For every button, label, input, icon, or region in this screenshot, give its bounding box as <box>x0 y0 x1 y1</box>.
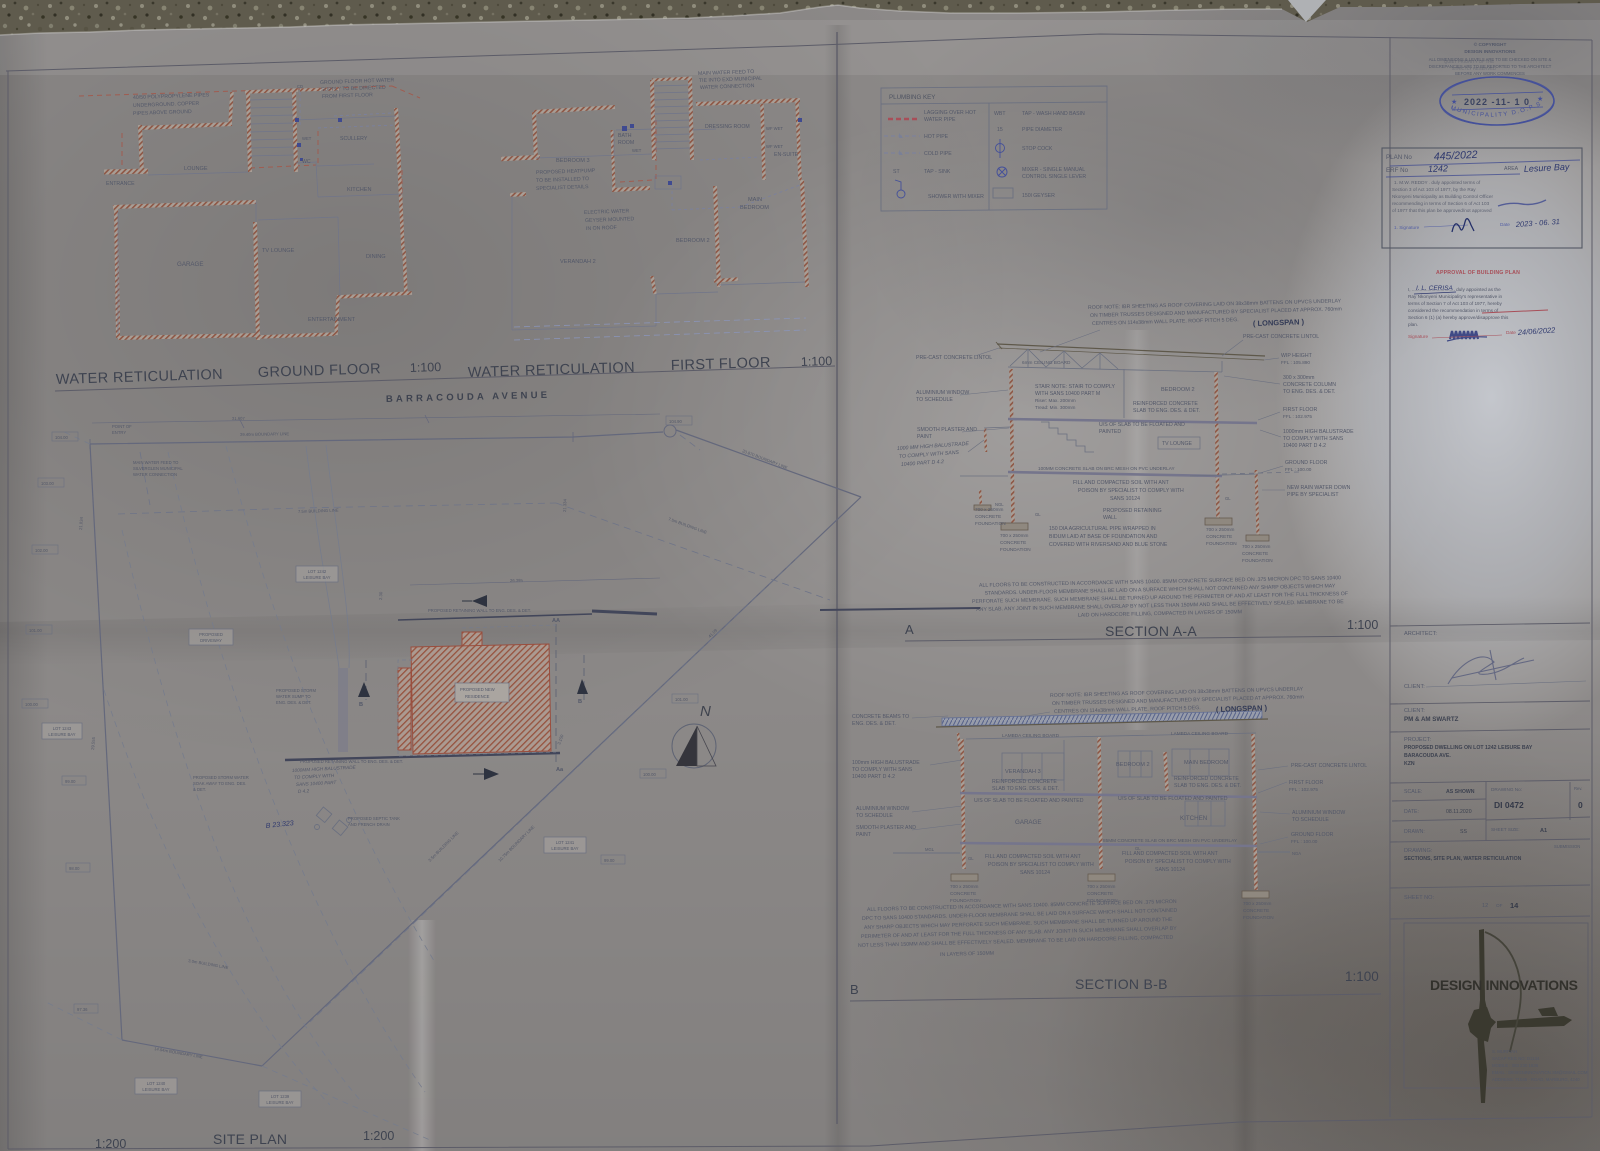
svg-text:FFL : 102.975: FFL : 102.975 <box>1283 414 1312 419</box>
svg-text:Ray Nkonyeni Municipality's re: Ray Nkonyeni Municipality's representati… <box>1408 294 1503 299</box>
svg-text:CLIENT:: CLIENT: <box>1404 708 1425 714</box>
svg-text:Nkonyeni Municipality as Build: Nkonyeni Municipality as Building Contro… <box>1392 194 1493 199</box>
svg-text:ARCHITECT:: ARCHITECT: <box>1404 631 1437 637</box>
svg-text:PIPE BY SPECIALIST: PIPE BY SPECIALIST <box>1287 492 1339 498</box>
svg-text:AND FRENCH DRAIN: AND FRENCH DRAIN <box>348 822 390 827</box>
svg-text:1:100: 1:100 <box>1345 969 1379 984</box>
svg-text:PM & AM SWARTZ: PM & AM SWARTZ <box>1404 716 1459 723</box>
svg-text:TO SCHEDULE: TO SCHEDULE <box>1292 817 1329 823</box>
svg-text:Aa: Aa <box>556 767 564 773</box>
svg-text:PRE-CAST CONCRETE LINTOL: PRE-CAST CONCRETE LINTOL <box>916 355 992 361</box>
svg-text:99.00: 99.00 <box>604 858 615 863</box>
svg-text:ADDRESS: 71045 - ROAD, MARBURG: ADDRESS: 71045 - ROAD, MARBURG, 4240 <box>1492 1077 1580 1082</box>
svg-text:LOT 1240: LOT 1240 <box>147 1081 166 1086</box>
svg-text:POISON BY SPECIALIST TO COMPLY: POISON BY SPECIALIST TO COMPLY WITH <box>1078 488 1184 494</box>
svg-text:PROPOSED RETAINING WALL TO ENG: PROPOSED RETAINING WALL TO ENG. DES. & D… <box>428 608 531 613</box>
svg-text:TO SCHEDULE: TO SCHEDULE <box>916 397 953 403</box>
svg-text:SLAB TO ENG. DES. & DET.: SLAB TO ENG. DES. & DET. <box>1133 408 1200 414</box>
svg-text:STOP COCK: STOP COCK <box>1022 146 1053 152</box>
svg-text:PLAN No: PLAN No <box>1386 154 1412 161</box>
svg-text:& DET.: & DET. <box>193 787 206 792</box>
svg-text:101.00: 101.00 <box>675 697 688 702</box>
svg-text:6mm CEILING BOARD: 6mm CEILING BOARD <box>1022 360 1071 365</box>
svg-text:CONCRETE BEAMS TO: CONCRETE BEAMS TO <box>852 714 909 720</box>
svg-text:ENTRANCE: ENTRANCE <box>106 181 135 187</box>
svg-text:QUIET PRIORITY OF THE: QUIET PRIORITY OF THE <box>1444 59 1494 64</box>
svg-text:STRICTLY RESERVED: STRICTLY RESERVED <box>1452 66 1496 71</box>
svg-text:15: 15 <box>997 127 1003 133</box>
svg-text:08.11.2020: 08.11.2020 <box>1446 809 1472 815</box>
svg-text:CLIENT:: CLIENT: <box>1404 684 1425 690</box>
svg-text:GL: GL <box>1135 846 1141 851</box>
svg-text:of 1977 that this plan be appr: of 1977 that this plan be approved/not a… <box>1392 208 1492 213</box>
svg-text:REINFORCED CONCRETE: REINFORCED CONCRETE <box>1174 776 1239 782</box>
svg-text:REINFORCED CONCRETE: REINFORCED CONCRETE <box>992 779 1057 785</box>
svg-text:1:200: 1:200 <box>363 1129 394 1143</box>
svg-text:100MM CONCRETE SLAB ON BRC MES: 100MM CONCRETE SLAB ON BRC MESH ON PVC U… <box>1038 466 1176 471</box>
svg-text:GL: GL <box>1225 496 1231 501</box>
svg-text:LEISURE BAY: LEISURE BAY <box>142 1087 169 1092</box>
svg-text:PROPOSED: PROPOSED <box>199 632 223 637</box>
svg-text:1000mm HIGH BALUSTRADE: 1000mm HIGH BALUSTRADE <box>1283 429 1354 435</box>
svg-text:Rev.: Rev. <box>1574 786 1582 791</box>
svg-text:Section 6 (1) (a) hereby appro: Section 6 (1) (a) hereby approve/disappr… <box>1408 315 1509 320</box>
svg-text:EMAIL : DESIGNINNOVATION.SM@GM: EMAIL : DESIGNINNOVATION.SM@GMAIL.COM <box>1492 1070 1588 1075</box>
svg-text:DRAWING:: DRAWING: <box>1404 848 1433 854</box>
svg-text:SANS 10124: SANS 10124 <box>1020 870 1050 876</box>
svg-text:FOUNDATION: FOUNDATION <box>975 521 1006 526</box>
svg-text:SILVERGLEN MUNICIPAL: SILVERGLEN MUNICIPAL <box>133 466 183 471</box>
svg-text:21.334: 21.334 <box>562 498 567 512</box>
svg-text:DESIGN INNOVATIONS: DESIGN INNOVATIONS <box>1430 977 1578 993</box>
svg-text:FOUNDATION: FOUNDATION <box>1243 915 1274 920</box>
svg-text:FOUNDATION: FOUNDATION <box>1000 547 1031 552</box>
svg-text:GL: GL <box>968 856 974 861</box>
svg-text:SUBMISSION: SUBMISSION <box>1554 844 1580 849</box>
svg-text:POINT OF: POINT OF <box>112 424 132 429</box>
svg-text:I. L. CERISA: I. L. CERISA <box>1416 285 1453 292</box>
svg-text:CONCRETE: CONCRETE <box>1242 551 1268 556</box>
svg-text:SMOOTH PLASTER AND: SMOOTH PLASTER AND <box>856 825 916 831</box>
svg-text:DINING: DINING <box>366 254 386 260</box>
svg-text:PROPOSED RETAINING: PROPOSED RETAINING <box>1103 508 1162 514</box>
svg-text:LEISURE BAY: LEISURE BAY <box>266 1100 293 1105</box>
svg-text:NGA: NGA <box>1292 851 1301 856</box>
svg-text:S. MURPIAH: S. MURPIAH <box>1492 1049 1517 1054</box>
svg-text:700 x 250mm: 700 x 250mm <box>1000 533 1028 538</box>
svg-text:10400 PART D 4.2: 10400 PART D 4.2 <box>852 774 895 780</box>
svg-text:AS SHOWN: AS SHOWN <box>1446 789 1475 795</box>
svg-text:SMOOTH PLASTER AND: SMOOTH PLASTER AND <box>917 427 977 433</box>
svg-text:CONTROL SINGLE LEVER: CONTROL SINGLE LEVER <box>1022 174 1086 180</box>
svg-text:12: 12 <box>1482 903 1488 909</box>
svg-text:( LONGSPAN ): ( LONGSPAN ) <box>1216 703 1268 714</box>
svg-text:ROOM: ROOM <box>618 140 634 146</box>
svg-text:FILL AND COMPACTED SOIL WITH A: FILL AND COMPACTED SOIL WITH ANT <box>1073 480 1170 486</box>
svg-text:WITH SANS 10400 PART M: WITH SANS 10400 PART M <box>1035 391 1100 397</box>
svg-text:DRESSING ROOM: DRESSING ROOM <box>705 124 750 130</box>
svg-text:U/S OF SLAB TO BE FLOATED AND: U/S OF SLAB TO BE FLOATED AND PAINTED <box>974 798 1084 804</box>
svg-text:considered the recommendation: considered the recommendation in terms o… <box>1408 308 1499 313</box>
svg-text:Section 3 of Act 103 of 1977,: Section 3 of Act 103 of 1977, by the Ray <box>1392 187 1476 192</box>
svg-text:MAIN WATER FEED TO: MAIN WATER FEED TO <box>133 460 179 465</box>
svg-text:1. Signature: 1. Signature <box>1394 225 1420 230</box>
svg-text:Signature: Signature <box>1408 334 1428 339</box>
svg-text:LOUNGE: LOUNGE <box>184 166 208 172</box>
svg-text:700 x 250mm: 700 x 250mm <box>950 884 978 889</box>
svg-text:PRE-CAST CONCRETE LINTOL: PRE-CAST CONCRETE LINTOL <box>1243 334 1319 340</box>
svg-text:CONCRETE: CONCRETE <box>1000 540 1026 545</box>
svg-text:N: N <box>700 703 711 720</box>
svg-text:ENTRY: ENTRY <box>112 430 126 435</box>
svg-text:BATH: BATH <box>618 133 632 139</box>
svg-text:Riser: Max. 200mm: Riser: Max. 200mm <box>1035 398 1076 403</box>
svg-text:TO ENG. DES. & DET.: TO ENG. DES. & DET. <box>1283 389 1335 395</box>
svg-text:BEDROOM: BEDROOM <box>740 205 769 211</box>
svg-text:PAINT: PAINT <box>917 434 933 440</box>
svg-text:100mm HIGH BALUSTRADE: 100mm HIGH BALUSTRADE <box>852 760 920 766</box>
svg-text:KITCHEN: KITCHEN <box>347 187 372 193</box>
svg-text:POISON BY SPECIALIST TO COMPLY: POISON BY SPECIALIST TO COMPLY WITH <box>988 862 1094 868</box>
svg-text:POISON BY SPECIALIST TO COMPLY: POISON BY SPECIALIST TO COMPLY WITH <box>1125 859 1231 865</box>
svg-text:REINFORCED CONCRETE: REINFORCED CONCRETE <box>1133 401 1198 407</box>
svg-text:WATER PIPE: WATER PIPE <box>924 117 956 123</box>
svg-text:TO COMPLY WITH SANS: TO COMPLY WITH SANS <box>852 767 913 773</box>
svg-text:WATER SUMP TO: WATER SUMP TO <box>276 694 311 699</box>
svg-text:LEISURE BAY: LEISURE BAY <box>303 575 330 580</box>
svg-text:FFL : 102.975: FFL : 102.975 <box>1289 787 1318 792</box>
svg-text:445/2022: 445/2022 <box>1434 149 1479 163</box>
svg-text:LAMBDA CEILING BOARD: LAMBDA CEILING BOARD <box>1171 731 1229 736</box>
svg-text:WATER CONNECTION: WATER CONNECTION <box>133 472 177 477</box>
svg-text:99.00: 99.00 <box>65 779 76 784</box>
svg-text:WIP HEIGHT: WIP HEIGHT <box>1281 353 1313 359</box>
svg-text:NEW RAIN WATER DOWN: NEW RAIN WATER DOWN <box>1287 485 1351 491</box>
svg-text:BEDROOM 2: BEDROOM 2 <box>676 238 710 244</box>
svg-text:EN-SUITE: EN-SUITE <box>774 152 799 158</box>
svg-text:STAIR NOTE: STAIR TO COMPLY: STAIR NOTE: STAIR TO COMPLY <box>1035 384 1115 390</box>
svg-text:Tread: Min. 300mm: Tread: Min. 300mm <box>1035 405 1076 410</box>
svg-text:NGL: NGL <box>995 502 1004 507</box>
svg-text:( LONGSPAN ): ( LONGSPAN ) <box>1253 317 1305 328</box>
svg-text:SHEET NO:: SHEET NO: <box>1404 895 1434 901</box>
svg-text:B: B <box>850 982 859 997</box>
svg-text:TV LOUNGE: TV LOUNGE <box>262 248 295 254</box>
svg-text:TO COMPLY WITH SANS: TO COMPLY WITH SANS <box>1283 436 1344 442</box>
svg-text:ENG. DES. & DET.: ENG. DES. & DET. <box>276 700 311 705</box>
svg-text:700 x 250mm: 700 x 250mm <box>1243 901 1271 906</box>
svg-text:700 x 250mm: 700 x 250mm <box>1206 527 1234 532</box>
svg-text:COVERED WITH RIVERSAND AND BLU: COVERED WITH RIVERSAND AND BLUE STONE <box>1049 542 1168 548</box>
svg-text:CONCRETE: CONCRETE <box>1087 891 1113 896</box>
svg-text:ERF No: ERF No <box>1386 167 1409 174</box>
svg-text:© COPYRIGHT: © COPYRIGHT <box>1474 41 1507 47</box>
svg-text:PAINT: PAINT <box>856 832 872 838</box>
svg-text:U/S OF SLAB TO BE FLOATED AND: U/S OF SLAB TO BE FLOATED AND PAINTED <box>1118 796 1228 802</box>
svg-text:PROPOSED SEPTIC TANK: PROPOSED SEPTIC TANK <box>348 816 400 821</box>
svg-text:PIPE DIAMETER: PIPE DIAMETER <box>1022 127 1062 133</box>
svg-text:A1: A1 <box>1540 828 1547 834</box>
svg-text:FIRST FLOOR: FIRST FLOOR <box>1289 780 1323 786</box>
svg-text:SECTION A-A: SECTION A-A <box>1105 623 1197 639</box>
svg-text:plan.: plan. <box>1408 322 1418 327</box>
svg-text:MOBILE : 083 230 1636: MOBILE : 083 230 1636 <box>1492 1063 1539 1068</box>
svg-text:PROPOSED STORM WATER: PROPOSED STORM WATER <box>193 775 249 780</box>
svg-text:WALL: WALL <box>1103 515 1117 521</box>
svg-text:98.00: 98.00 <box>69 866 80 871</box>
svg-text:DRAWN:: DRAWN: <box>1404 829 1425 835</box>
svg-text:700 x 250mm: 700 x 250mm <box>1242 544 1270 549</box>
svg-text:WBT: WBT <box>994 111 1006 117</box>
svg-text:IN ON ROOF: IN ON ROOF <box>586 225 617 232</box>
svg-text:LEISURE BAY: LEISURE BAY <box>551 846 578 851</box>
svg-text:150 DIA AGRICULTURAL PIPE WRAP: 150 DIA AGRICULTURAL PIPE WRAPPED IN <box>1049 526 1156 532</box>
svg-text:DI 0472: DI 0472 <box>1494 800 1524 810</box>
svg-text:LOT 1241: LOT 1241 <box>556 840 575 845</box>
svg-text:MGL: MGL <box>925 847 935 852</box>
svg-text:FFL : 100.00: FFL : 100.00 <box>1285 467 1312 472</box>
svg-text:300 x 300mm: 300 x 300mm <box>1283 375 1314 381</box>
svg-text:PROPOSED RETAINING WALL TO ENG: PROPOSED RETAINING WALL TO ENG. DES. & D… <box>300 759 403 764</box>
svg-text:CONCRETE: CONCRETE <box>1243 908 1269 913</box>
svg-text:SS: SS <box>1460 829 1467 835</box>
svg-text:MIXER - SINGLE MANUAL: MIXER - SINGLE MANUAL <box>1022 167 1085 173</box>
svg-text:LOT 1239: LOT 1239 <box>271 1094 290 1099</box>
svg-text:2.30: 2.30 <box>378 591 383 600</box>
svg-text:OF: OF <box>1496 903 1503 908</box>
svg-text:31.607: 31.607 <box>232 416 246 421</box>
svg-text:103.00: 103.00 <box>41 481 54 486</box>
svg-text:PROPOSED DWELLING ON LOT 1242: PROPOSED DWELLING ON LOT 1242 LEISURE BA… <box>1404 745 1533 751</box>
svg-text:100.00: 100.00 <box>25 702 38 707</box>
svg-text:PAINTED: PAINTED <box>1099 429 1121 435</box>
svg-text:recommending in terms of Secti: recommending in terms of Section 6 of Ac… <box>1392 201 1490 206</box>
svg-text:SECTION B-B: SECTION B-B <box>1075 976 1168 992</box>
svg-text:A: A <box>905 622 914 637</box>
svg-text:14: 14 <box>1510 901 1519 910</box>
svg-text:0: 0 <box>1578 800 1583 810</box>
svg-text:SACAP REG NO: D1134: SACAP REG NO: D1134 <box>1492 1056 1540 1061</box>
svg-text:ENTERTAINMENT: ENTERTAINMENT <box>308 317 356 323</box>
svg-text:APPROVAL OF BUILDING PLAN: APPROVAL OF BUILDING PLAN <box>1436 270 1520 276</box>
svg-text:TAP - SINK: TAP - SINK <box>924 169 951 175</box>
svg-text:104.00: 104.00 <box>55 435 68 440</box>
svg-text:85MM CONCRETE SLAB ON BRC MESH: 85MM CONCRETE SLAB ON BRC MESH ON PVC UN… <box>1103 838 1238 843</box>
svg-text:LAGGING OVER HOT: LAGGING OVER HOT <box>924 110 977 116</box>
svg-text:RESIDENCE: RESIDENCE <box>465 694 490 699</box>
svg-text:WF WET: WF WET <box>766 126 783 131</box>
svg-text:PROJECT:: PROJECT: <box>1404 737 1431 743</box>
svg-text:PRE-CAST CONCRETE LINTOL: PRE-CAST CONCRETE LINTOL <box>1291 763 1367 769</box>
svg-text:SOAK AWAY TO ENG. DES.: SOAK AWAY TO ENG. DES. <box>193 781 246 786</box>
svg-text:MAIN: MAIN <box>748 197 762 203</box>
svg-text:COLD PIPE: COLD PIPE <box>924 151 952 157</box>
svg-text:FIRST FLOOR: FIRST FLOOR <box>1283 407 1317 413</box>
svg-text:1:200: 1:200 <box>95 1137 126 1151</box>
svg-text:SHEET SIZE:: SHEET SIZE: <box>1491 827 1520 832</box>
svg-text:1:100: 1:100 <box>410 360 442 375</box>
svg-text:HOT PIPE: HOT PIPE <box>924 134 949 140</box>
svg-text:100.00: 100.00 <box>643 772 656 777</box>
svg-text:ALUMINIUM WINDOW: ALUMINIUM WINDOW <box>916 390 969 396</box>
svg-text:DESIGN INNOVATIONS: DESIGN INNOVATIONS <box>1464 49 1515 54</box>
svg-text:WET: WET <box>302 136 312 141</box>
svg-text:SLAB TO ENG. DES. & DET.: SLAB TO ENG. DES. & DET. <box>1174 783 1241 789</box>
svg-text:KZN: KZN <box>1404 761 1415 767</box>
svg-text:TO SCHEDULE: TO SCHEDULE <box>856 813 893 819</box>
svg-text:WF WET: WF WET <box>766 144 783 149</box>
svg-text:GROUND FLOOR: GROUND FLOOR <box>1285 460 1328 466</box>
svg-text:PROPOSED NEW: PROPOSED NEW <box>460 687 495 692</box>
svg-text:SCALE:: SCALE: <box>1404 789 1422 795</box>
svg-text:DRAWING No:: DRAWING No: <box>1491 787 1522 792</box>
svg-text:1. M.W. REDDY . duly appoin: 1. M.W. REDDY . duly appointed terms of <box>1394 180 1481 185</box>
svg-text:B: B <box>359 702 363 708</box>
svg-text:ST: ST <box>893 169 900 175</box>
svg-text:97.36: 97.36 <box>77 1007 88 1012</box>
svg-text:LEISURE BAY: LEISURE BAY <box>48 732 75 737</box>
svg-text:AA: AA <box>552 618 560 624</box>
svg-text:ENG. DES. & DET.: ENG. DES. & DET. <box>852 721 896 727</box>
svg-text:SCULLERY: SCULLERY <box>340 136 368 142</box>
svg-text:Date: Date <box>1500 222 1510 227</box>
svg-text:PLUMBING KEY: PLUMBING KEY <box>889 94 935 101</box>
svg-text:MAIN BEDROOM: MAIN BEDROOM <box>1184 760 1229 766</box>
svg-text:DATE:: DATE: <box>1404 809 1419 815</box>
svg-text:LOT 1242: LOT 1242 <box>308 569 327 574</box>
svg-text:★: ★ <box>1451 98 1457 106</box>
svg-text:LAMBDA CEILING BOARD: LAMBDA CEILING BOARD <box>1002 733 1060 738</box>
svg-text:39.40m BOUNDARY LINE: 39.40m BOUNDARY LINE <box>240 431 289 437</box>
svg-text:SLAB TO ENG. DES. & DET.: SLAB TO ENG. DES. & DET. <box>992 786 1059 792</box>
svg-text:KITCHEN: KITCHEN <box>1180 815 1207 822</box>
svg-text:CONCRETE COLUMN: CONCRETE COLUMN <box>1283 382 1336 388</box>
svg-text:ALUMINIUM WINDOW: ALUMINIUM WINDOW <box>856 806 909 812</box>
svg-text:101.00: 101.00 <box>29 628 42 633</box>
svg-text:BEFORE ANY WORK COMMENCES: BEFORE ANY WORK COMMENCES <box>1455 71 1525 76</box>
svg-text:BEDROOM 3: BEDROOM 3 <box>556 158 590 164</box>
svg-text:10400 PART D 4.2: 10400 PART D 4.2 <box>1283 443 1326 449</box>
svg-text:FFL : 100.00: FFL : 100.00 <box>1291 839 1318 844</box>
svg-text:GARAGE: GARAGE <box>177 261 203 268</box>
svg-text:BARACOUDA AVE.: BARACOUDA AVE. <box>1404 753 1451 759</box>
svg-text:BIDUM LAID AT BASE OF FOUNDATI: BIDUM LAID AT BASE OF FOUNDATION AND <box>1049 534 1158 540</box>
svg-text:700 x 250mm: 700 x 250mm <box>1087 884 1115 889</box>
svg-text:BEDROOM 2: BEDROOM 2 <box>1116 762 1150 768</box>
svg-text:PROPOSED STORM: PROPOSED STORM <box>276 688 316 693</box>
svg-text:GL: GL <box>1035 512 1041 517</box>
svg-text:CONCRETE: CONCRETE <box>950 891 976 896</box>
svg-text:SANS 10124: SANS 10124 <box>1155 867 1185 873</box>
svg-text:TAP - WASH HAND BASIN: TAP - WASH HAND BASIN <box>1022 111 1085 117</box>
svg-text:LOT 1243: LOT 1243 <box>53 726 72 731</box>
svg-text:FOUNDATION: FOUNDATION <box>950 898 981 903</box>
svg-text:GARAGE: GARAGE <box>1015 819 1041 826</box>
svg-text:700 x 250mm: 700 x 250mm <box>975 507 1003 512</box>
svg-text:150l GEYSER: 150l GEYSER <box>1022 193 1055 199</box>
svg-text:104.90: 104.90 <box>669 419 682 424</box>
svg-text:1:100: 1:100 <box>1347 618 1378 632</box>
svg-text:BEDROOM 2: BEDROOM 2 <box>1161 387 1195 393</box>
svg-text:SITE PLAN: SITE PLAN <box>213 1131 287 1147</box>
svg-text:ALUMINIUM WINDOW: ALUMINIUM WINDOW <box>1292 810 1345 816</box>
svg-text:CD: CD <box>297 84 303 89</box>
svg-text:U/S OF SLAB TO BE FLOATED AND: U/S OF SLAB TO BE FLOATED AND <box>1099 422 1185 428</box>
svg-text:terms of Section 7 of Act 103: terms of Section 7 of Act 103 of 1977, h… <box>1408 301 1502 306</box>
svg-text:DRIVEWAY: DRIVEWAY <box>200 638 222 643</box>
svg-text:TV LOUNGE: TV LOUNGE <box>1162 441 1193 447</box>
svg-text:FILL AND COMPACTED SOIL WITH A: FILL AND COMPACTED SOIL WITH ANT <box>985 854 1082 860</box>
svg-text:B: B <box>578 699 582 705</box>
svg-text:VERANDAH 3: VERANDAH 3 <box>1005 769 1041 775</box>
svg-text:FOUNDATION: FOUNDATION <box>1206 541 1237 546</box>
svg-text:WC: WC <box>302 159 311 165</box>
svg-text:21.034: 21.034 <box>78 516 84 530</box>
svg-text:SHOWER WITH MIXER: SHOWER WITH MIXER <box>928 194 984 200</box>
svg-text:WET: WET <box>632 148 642 153</box>
svg-text:SECTIONS, SITE PLAN, WATER RET: SECTIONS, SITE PLAN, WATER RETICULATION <box>1404 856 1522 862</box>
svg-text:CONCRETE: CONCRETE <box>975 514 1001 519</box>
svg-text:D 4.2: D 4.2 <box>298 788 310 794</box>
svg-text:FFL : 105.890: FFL : 105.890 <box>1281 360 1310 365</box>
svg-text:Date: Date <box>1506 330 1516 335</box>
svg-text:FOUNDATION: FOUNDATION <box>1242 558 1273 563</box>
svg-text:2022 -11- 1 0: 2022 -11- 1 0 <box>1464 97 1530 107</box>
svg-text:102.00: 102.00 <box>35 548 48 553</box>
svg-text:GROUND FLOOR: GROUND FLOOR <box>1291 832 1334 838</box>
svg-text:FILL AND COMPACTED SOIL WITH A: FILL AND COMPACTED SOIL WITH ANT <box>1122 851 1219 857</box>
svg-text:SANS 10124: SANS 10124 <box>1110 496 1140 502</box>
svg-text:AREA: AREA <box>1504 166 1519 172</box>
svg-text:VERANDAH 2: VERANDAH 2 <box>560 259 596 265</box>
svg-text:CONCRETE: CONCRETE <box>1206 534 1232 539</box>
